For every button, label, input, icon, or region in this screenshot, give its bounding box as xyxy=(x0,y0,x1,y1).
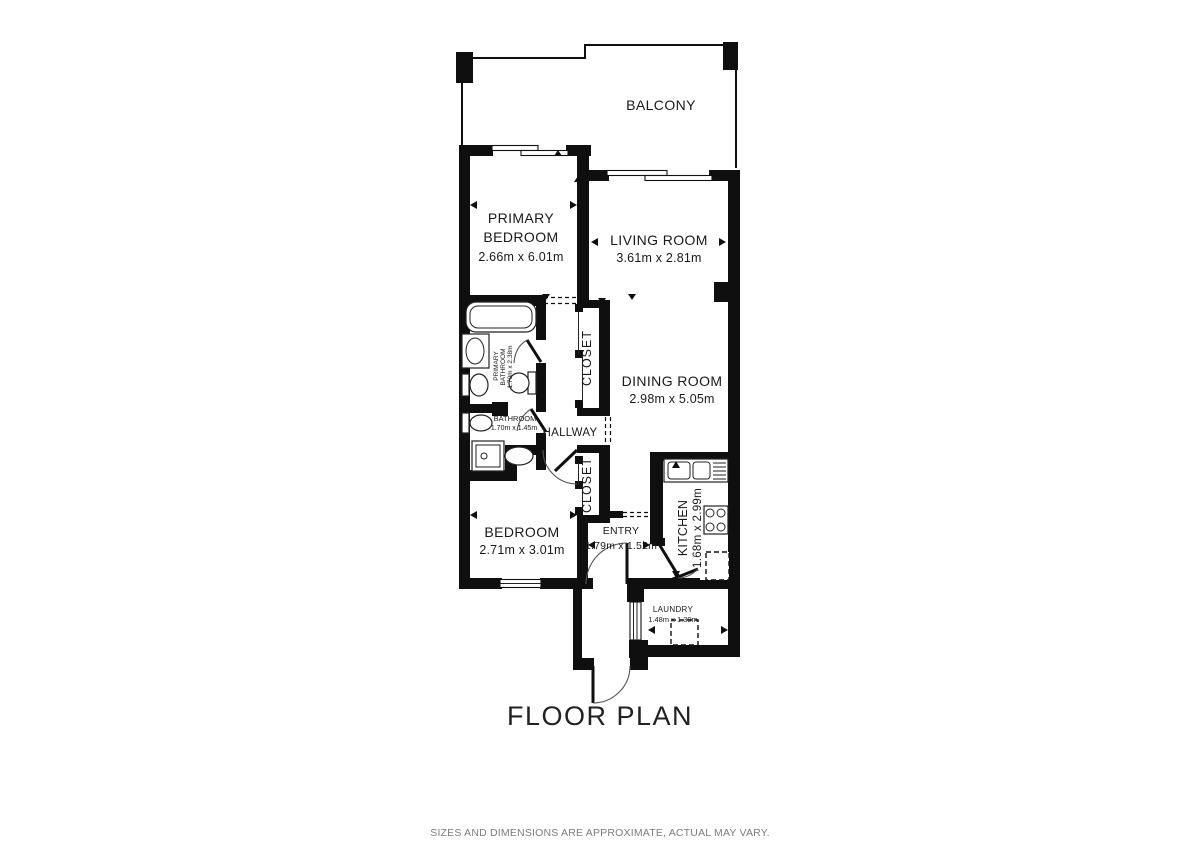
label-primary-bathroom: PRIMARY xyxy=(493,351,500,381)
label-entry: ENTRY xyxy=(603,525,639,537)
wall xyxy=(599,308,610,408)
wall xyxy=(728,181,740,458)
label-laundry: LAUNDRY xyxy=(653,605,694,614)
wall xyxy=(577,408,610,416)
dimension-arrow-icon xyxy=(470,201,477,209)
window-primary-bedroom xyxy=(492,146,538,151)
wall xyxy=(459,578,502,589)
wall xyxy=(577,515,610,523)
label-bathroom-dimensions: 1.70m x 1.45m xyxy=(491,425,537,432)
dimension-arrow-icon xyxy=(628,294,636,300)
wall xyxy=(459,156,470,589)
toilet-tank-icon xyxy=(462,374,469,396)
label-primary-bathroom: BATHROOM xyxy=(500,348,507,385)
cased-openings xyxy=(544,298,650,517)
label-entry-dimensions: 1.79m x 1.52m xyxy=(585,540,657,552)
label-primary-bedroom: BEDROOM xyxy=(483,229,558,245)
label-closet-upper: CLOSET xyxy=(580,330,594,386)
laundry-door-panel xyxy=(630,602,641,640)
wall xyxy=(573,589,582,658)
label-dining-room-dimensions: 2.98m x 5.05m xyxy=(629,392,714,406)
label-bedroom-dimensions: 2.71m x 3.01m xyxy=(479,543,564,557)
wall xyxy=(577,445,610,453)
label-hallway: HALLWAY xyxy=(543,427,598,439)
dimension-arrow-icon xyxy=(470,511,477,519)
dimension-arrow-icon xyxy=(591,238,598,246)
label-dining-room: DINING ROOM xyxy=(622,373,723,389)
sliding-door-living-room xyxy=(607,171,667,176)
wall xyxy=(589,170,609,181)
wall xyxy=(536,295,546,340)
toilet-tank-icon xyxy=(462,413,469,433)
wall xyxy=(728,458,740,657)
floor-plan-canvas: BALCONY PRIMARY BEDROOM 2.66m x 6.01m LI… xyxy=(0,0,1200,849)
label-kitchen: KITCHEN xyxy=(676,500,690,556)
label-primary-bedroom-dimensions: 2.66m x 6.01m xyxy=(478,250,563,264)
dimension-arrow-icon xyxy=(719,238,726,246)
wall xyxy=(627,589,644,602)
wall xyxy=(646,645,740,657)
label-balcony: BALCONY xyxy=(626,97,696,113)
sink-icon xyxy=(505,447,533,465)
wall xyxy=(459,145,493,156)
front-door-arc xyxy=(593,666,630,703)
wall xyxy=(630,658,648,670)
primary-bathroom-door-arc xyxy=(514,340,527,363)
primary-bathroom-fixtures xyxy=(462,302,536,396)
wall xyxy=(709,170,740,181)
wall xyxy=(629,640,648,658)
label-primary-bedroom: PRIMARY xyxy=(488,210,555,226)
bedroom-door xyxy=(555,450,577,471)
sliding-door-living-room xyxy=(645,176,712,181)
wall xyxy=(540,578,593,589)
disclaimer-text: SIZES AND DIMENSIONS ARE APPROXIMATE, AC… xyxy=(430,827,770,839)
slider-track-block xyxy=(575,400,583,408)
dimension-arrow-icon xyxy=(570,201,577,209)
label-laundry-dimensions: 1.48m x 1.39m xyxy=(648,615,698,624)
label-kitchen-dimensions: 1.68m x 2.99m xyxy=(692,488,704,568)
label-living-room-dimensions: 3.61m x 2.81m xyxy=(616,251,701,265)
wall xyxy=(599,453,610,515)
dishwasher-icon xyxy=(706,552,729,580)
label-living-room: LIVING ROOM xyxy=(610,232,708,248)
wall xyxy=(536,363,546,412)
wall-pillar xyxy=(714,282,740,302)
wall xyxy=(723,42,738,70)
toilet-icon xyxy=(470,415,492,431)
wall xyxy=(577,145,589,305)
page-title: FLOOR PLAN xyxy=(507,701,693,731)
wall xyxy=(456,52,473,83)
wall xyxy=(459,404,496,413)
wall xyxy=(573,658,594,670)
dimension-arrow-icon xyxy=(648,626,655,634)
dimension-arrow-icon xyxy=(721,626,728,634)
label-primary-bathroom-dimensions: 1.70m x 2.38m xyxy=(507,346,514,389)
primary-bathroom-door xyxy=(527,340,541,362)
wall xyxy=(610,511,623,518)
wall xyxy=(698,580,740,589)
wall xyxy=(650,452,663,518)
toilet-icon xyxy=(470,374,488,396)
label-bathroom: BATHROOM xyxy=(494,414,537,423)
label-bedroom: BEDROOM xyxy=(484,524,559,540)
slider-track-block xyxy=(575,304,583,312)
label-closet-lower: CLOSET xyxy=(580,457,594,513)
